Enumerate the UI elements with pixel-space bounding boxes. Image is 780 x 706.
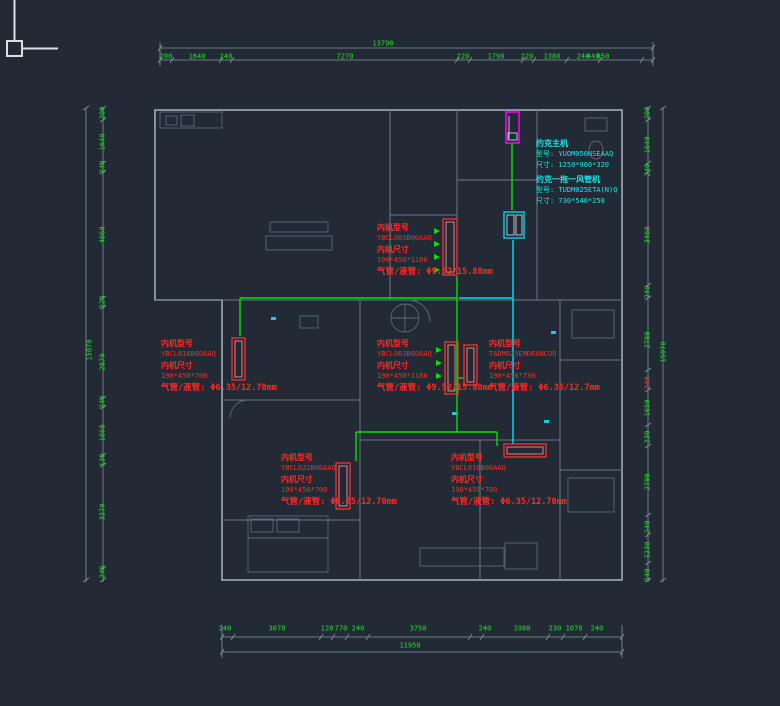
cad-viewport[interactable]: 13790 200 1640 240 7270 220 1790 220 138… [0, 0, 780, 706]
dim-label: 2870 [100, 354, 107, 371]
dim-label: 3460 [645, 227, 652, 244]
unit-model-value: YBCL018B00AAQ [451, 463, 567, 474]
unit-note-right: 内机型号 TADM025EMDRANCUQ 内机尺寸 190*450*730 气… [489, 338, 600, 394]
unit-pipe-spec: 气管/液管: Φ6.35/12.70mm [451, 497, 567, 508]
unit-note-bottom-right: 内机型号 YBCL018B00AAQ 内机尺寸 190*450*700 气管/液… [451, 452, 567, 508]
unit-model-label: 内机型号 [161, 338, 277, 349]
outdoor-note-model: 型号: YUOM050HSEAAQ [536, 149, 617, 160]
ducted-note-title: 约克一拖一风管机 [536, 174, 617, 185]
dim-label: 240 [591, 626, 604, 633]
dim-label: 200 [100, 107, 107, 120]
dim-label: 7270 [337, 54, 354, 61]
dim-label: 3750 [410, 626, 427, 633]
dim-total-bottom: 11950 [399, 643, 420, 650]
dim-label: 220 [457, 54, 470, 61]
dim-label: 4060 [100, 227, 107, 244]
dim-label: 220 [100, 296, 107, 309]
dim-label: 240 [645, 521, 652, 534]
unit-size-value: 190*450*700 [281, 485, 397, 496]
unit-size-label: 内机尺寸 [377, 360, 493, 371]
dim-label: 200 [645, 107, 652, 120]
outdoor-unit-note: 约克主机 型号: YUOM050HSEAAQ 尺寸: 1250*960*320 … [536, 138, 617, 207]
unit-model-label: 内机型号 [377, 338, 493, 349]
dim-label: 1380 [544, 54, 561, 61]
unit-size-label: 内机尺寸 [377, 244, 493, 255]
dim-label: 1980 [514, 626, 531, 633]
dim-total-left: 15070 [87, 339, 94, 360]
dim-label: 240 [479, 626, 492, 633]
dim-label: 850 [597, 54, 610, 61]
dim-label: 1650 [645, 400, 652, 417]
outdoor-main-unit [506, 112, 519, 143]
dim-label-red: 240 [645, 377, 652, 390]
dim-label: 240 [220, 54, 233, 61]
unit-note-center: 内机型号 YBCL063B00AAQ 内机尺寸 190*450*1180 气管/… [377, 338, 493, 394]
unit-model-value: YBCL018B00AAQ [161, 349, 277, 360]
ducted-note-model: 型号: TUDM025ETA(N)Q [536, 185, 617, 196]
unit-model-label: 内机型号 [451, 452, 567, 463]
dim-label: 240 [100, 161, 107, 174]
dim-total-top: 13790 [372, 41, 393, 48]
dim-label: 1640 [100, 134, 107, 151]
dim-label: 770 [335, 626, 348, 633]
dim-label: 1790 [488, 54, 505, 61]
unit-model-value: TADM025EMDRANCUQ [489, 349, 600, 360]
unit-size-value: 190*450*1180 [377, 255, 493, 266]
gas-pipe-lines [240, 143, 512, 461]
unit-model-label: 内机型号 [489, 338, 600, 349]
unit-note-living: 内机型号 YBCL063B00AAQ 内机尺寸 190*450*1180 气管/… [377, 222, 493, 278]
unit-model-label: 内机型号 [281, 452, 397, 463]
dim-label: 120 [321, 626, 334, 633]
dim-label: 240 [100, 566, 107, 579]
unit-size-value: 190*450*700 [161, 371, 277, 382]
outdoor-note-size: 尺寸: 1250*960*320 [536, 160, 617, 171]
dim-label: 230 [645, 431, 652, 444]
unit-model-value: YBCL063B00AAQ [377, 233, 493, 244]
dim-label: 240 [645, 569, 652, 582]
ducted-unit [504, 212, 524, 238]
dim-label: 130 [100, 454, 107, 467]
unit-size-label: 内机尺寸 [451, 474, 567, 485]
ucs-icon [7, 0, 58, 56]
dim-label: 3370 [100, 504, 107, 521]
dim-label: 3070 [269, 626, 286, 633]
unit-note-bottom-left: 内机型号 YBCL022B00AAQ 内机尺寸 190*450*700 气管/液… [281, 452, 397, 508]
dim-label: 240 [645, 164, 652, 177]
dim-label: 220 [521, 54, 534, 61]
dim-label: 2780 [645, 332, 652, 349]
dim-label: 240 [219, 626, 232, 633]
outdoor-note-title: 约克主机 [536, 138, 617, 149]
dim-label: 1070 [566, 626, 583, 633]
unit-model-value: YBCL022B00AAQ [281, 463, 397, 474]
unit-size-value: 190*450*730 [489, 371, 600, 382]
unit-pipe-spec: 气管/液管: Φ6.35/12.70mm [281, 497, 397, 508]
unit-size-label: 内机尺寸 [281, 474, 397, 485]
dim-label: 1640 [645, 137, 652, 154]
dim-label: 240 [100, 396, 107, 409]
dim-label: 1640 [189, 54, 206, 61]
dim-label: 240 [645, 286, 652, 299]
unit-note-left: 内机型号 YBCL018B00AAQ 内机尺寸 190*450*700 气管/液… [161, 338, 277, 394]
dim-total-right: 15070 [661, 341, 668, 362]
unit-size-label: 内机尺寸 [489, 360, 600, 371]
dim-label: 1230 [645, 542, 652, 559]
dim-label: 1860 [100, 425, 107, 442]
unit-pipe-spec: 气管/液管: Φ6.35/12.7mm [489, 383, 600, 394]
unit-size-label: 内机尺寸 [161, 360, 277, 371]
unit-pipe-spec: 气管/液管: Φ6.35/12.70mm [161, 383, 277, 394]
ducted-note-size: 尺寸: 730*540*250 [536, 196, 617, 207]
unit-pipe-spec: 气管/液管: Φ9.52/15.88mm [377, 383, 493, 394]
unit-pipe-spec: 气管/液管: Φ9.52/15.88mm [377, 267, 493, 278]
dim-label: 2790 [645, 474, 652, 491]
dim-label: 230 [549, 626, 562, 633]
dim-label: 240 [352, 626, 365, 633]
dim-label: 200 [160, 54, 173, 61]
unit-model-value: YBCL063B00AAQ [377, 349, 493, 360]
unit-size-value: 190*450*1180 [377, 371, 493, 382]
unit-model-label: 内机型号 [377, 222, 493, 233]
unit-size-value: 190*450*700 [451, 485, 567, 496]
